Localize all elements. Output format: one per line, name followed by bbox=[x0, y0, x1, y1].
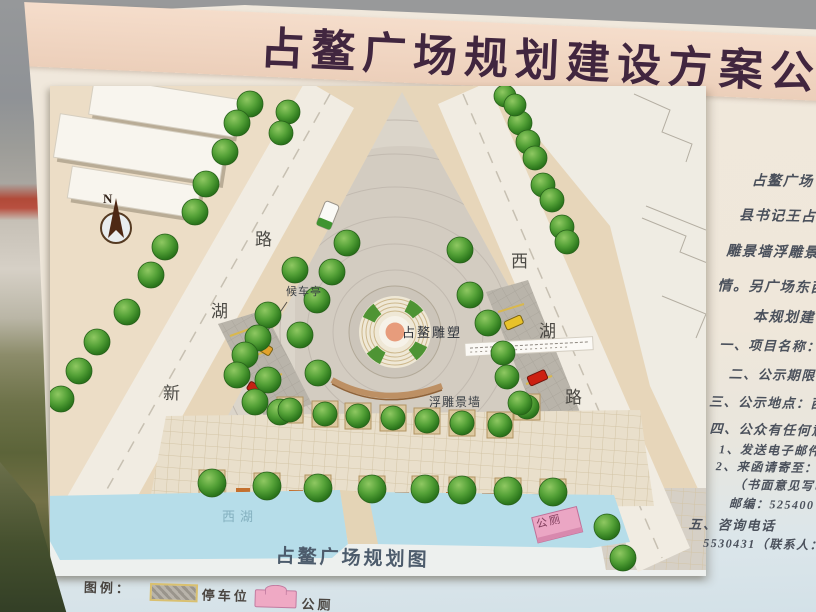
parking-swatch bbox=[150, 583, 199, 602]
legend: 图例： 停车位 公厕 bbox=[0, 0, 816, 612]
photo-of-planning-board: 占鳌广场规划建设方案公 bbox=[0, 0, 816, 612]
toilet-swatch-icon bbox=[254, 589, 297, 608]
toilet-legend-label: 公厕 bbox=[301, 594, 334, 612]
parking-legend-label: 停车位 bbox=[201, 585, 250, 605]
legend-label: 图例： bbox=[84, 577, 133, 597]
